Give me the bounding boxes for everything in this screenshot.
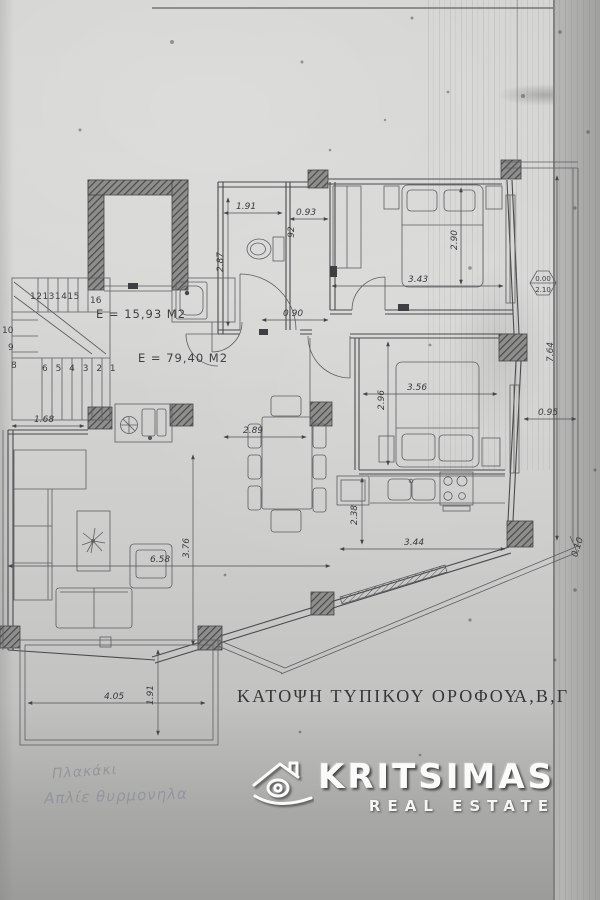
dim-stair-width: 1.68 — [34, 415, 54, 425]
level-marker: 0.00 2.10 — [530, 271, 556, 295]
right-balcony-rail — [573, 168, 578, 546]
chair — [271, 510, 301, 532]
staircase: 12131415 16 10 9 8 6 5 4 3 2 1 — [2, 278, 118, 420]
living-room-furniture — [14, 450, 172, 628]
chair — [313, 455, 326, 479]
column — [311, 592, 334, 615]
sliding-door — [340, 565, 447, 604]
bedroom1-furniture — [333, 185, 515, 303]
dim-kitchen-depth: 2.38 — [350, 505, 360, 525]
dim-dining-width: 2.89 — [243, 426, 263, 436]
dim-bed2-width: 3.56 — [407, 383, 427, 393]
house-eye-icon — [252, 758, 314, 816]
column — [308, 170, 328, 188]
column — [310, 402, 332, 426]
chair — [248, 486, 261, 510]
dim-bed1-depth: 2.90 — [450, 230, 460, 250]
pillow — [407, 190, 437, 211]
double-bed — [402, 185, 483, 287]
column — [507, 521, 533, 547]
dim-corridor: 0.90 — [283, 309, 303, 319]
drawing-title-suffix: Α,Β,Γ — [514, 686, 569, 706]
brand-tagline: REAL ESTATE — [369, 797, 555, 815]
elevator-shaft — [88, 180, 188, 291]
level-bottom: 2.10 — [535, 286, 551, 294]
dim-wc-height: 2.87 — [216, 252, 226, 272]
nightstand — [379, 436, 394, 462]
bedroom1-door — [352, 277, 385, 310]
pillow — [444, 190, 475, 211]
chair — [313, 488, 326, 512]
kitchen-sink — [412, 479, 435, 500]
dim-hall-width: 0.93 — [296, 208, 316, 218]
dim-kitchen-width: 3.44 — [404, 538, 424, 548]
chair — [313, 424, 326, 448]
level-top: 0.00 — [535, 275, 551, 283]
dim-wc-width: 1.91 — [236, 202, 256, 212]
wc-toilet — [247, 237, 284, 261]
pillow — [439, 435, 473, 461]
scanned-floor-plan: 12131415 16 10 9 8 6 5 4 3 2 1 — [0, 0, 600, 900]
dim-balcony-depth: 1.91 — [146, 685, 156, 705]
bathroom-door — [212, 322, 242, 352]
dimension-labels: 1.91 2.87 0.93 92 0.90 3.43 2.90 3.56 2.… — [34, 202, 586, 705]
dim-living-width: 6.58 — [150, 555, 170, 565]
stair-step-number: 10 — [2, 326, 14, 336]
stair-step-number: 8 — [11, 361, 17, 371]
nightstand — [482, 438, 500, 466]
dim-right-balcony-width: 0.95 — [538, 408, 558, 418]
nightstand — [486, 186, 502, 209]
wc-door — [240, 274, 296, 330]
stair-step-number: 9 — [8, 343, 14, 353]
double-bed — [396, 362, 479, 467]
entrance-fixture-symbol — [115, 404, 172, 442]
stove — [440, 472, 473, 505]
brand-name: KRITSIMAS — [318, 760, 555, 794]
stair-step-numbers-lower: 6 5 4 3 2 1 — [42, 364, 118, 374]
dim-bed2-depth: 2.96 — [377, 390, 387, 410]
dim-bed1-width: 3.43 — [408, 275, 428, 285]
drawing-title: ΚΑΤΟΨΗ ΤΥΠΙΚΟΥ ΟΡΟΦΟΥ — [237, 686, 519, 706]
stair-step-numbers-upper: 12131415 — [30, 292, 80, 302]
pillow — [402, 434, 435, 460]
kitchen-sink — [388, 479, 411, 500]
corner-sofa — [14, 450, 86, 600]
dining-table — [262, 417, 312, 509]
dim-hall-small: 92 — [287, 226, 297, 238]
brand-logo: KRITSIMAS REAL ESTATE — [252, 758, 555, 816]
bedroom2-door — [308, 336, 350, 378]
dim-balcony-width: 4.05 — [104, 692, 124, 702]
dim-right-balcony-length: 7.64 — [546, 342, 556, 362]
wall-marks — [128, 266, 409, 335]
bedroom2-furniture — [379, 362, 519, 473]
stair-step-number: 16 — [90, 296, 102, 306]
column — [501, 160, 521, 179]
column — [170, 404, 193, 426]
chair — [271, 396, 301, 416]
column — [499, 334, 527, 361]
stairwell-area-label: E = 15,93 M2 — [96, 307, 186, 321]
plant — [82, 528, 105, 553]
apartment-area-label: E = 79,40 M2 — [138, 351, 228, 365]
nightstand — [384, 186, 399, 209]
counter — [370, 476, 505, 503]
chair — [248, 455, 261, 479]
dim-living-depth: 3.76 — [182, 538, 192, 558]
